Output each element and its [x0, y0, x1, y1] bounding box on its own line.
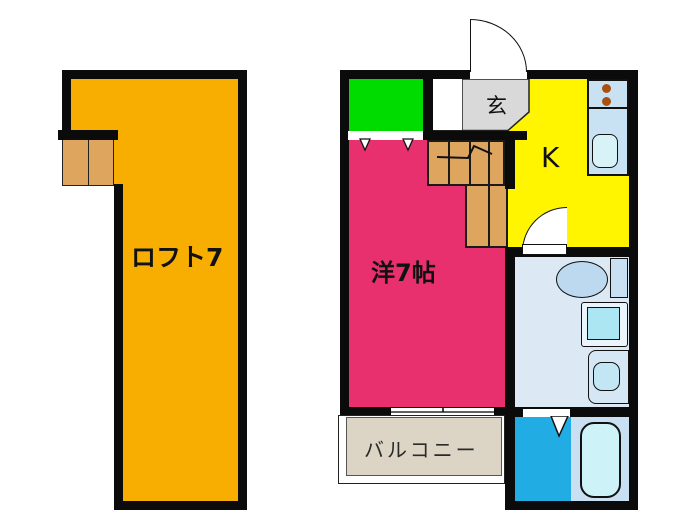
genkan-label: 玄 — [486, 96, 507, 117]
wall-loft-top — [62, 70, 247, 79]
wall-loft-right — [238, 70, 247, 510]
toilet-tank-icon — [610, 258, 628, 298]
stove-burner-icon — [602, 97, 611, 106]
wall-main-left — [340, 70, 349, 417]
balcony-label: バルコニー — [364, 440, 479, 460]
loft-floor-lower — [114, 131, 238, 501]
bathroom-door-leaf — [522, 244, 567, 255]
washing-machine-icon — [581, 302, 628, 347]
loft-storage-box — [62, 139, 89, 186]
vanity-sink-icon — [588, 350, 629, 404]
entrance-corridor — [433, 79, 462, 131]
wall-bath-left — [505, 407, 515, 510]
kitchen-counter — [587, 79, 629, 176]
closet-fold-mark-icon — [348, 131, 423, 153]
kitchen-sink-icon — [592, 134, 618, 168]
loft-label: ロフト7 — [131, 245, 223, 270]
kitchen-label: K — [541, 144, 559, 172]
western-room-label: 洋7帖 — [371, 261, 436, 285]
stairs-lower-run — [465, 184, 508, 248]
stairs-arrow-icon — [427, 140, 505, 186]
loft-storage-box — [88, 139, 114, 186]
toilet-bowl-icon — [556, 261, 608, 298]
wall-loft-bottom — [114, 501, 247, 510]
wall-loft-left-lower — [114, 184, 123, 510]
closet-floor — [349, 79, 423, 131]
shower-fold-mark-icon — [543, 416, 573, 439]
stove-burner-icon — [602, 84, 611, 93]
washer-drum-icon — [587, 307, 620, 340]
wall-closet-right — [423, 70, 433, 140]
floor-plan-canvas: ロフト7 玄 K 洋7帖 バルコニー — [0, 0, 700, 525]
wall-loft-notch — [58, 130, 118, 140]
wall-mid-vertical — [505, 247, 515, 417]
vanity-basin-icon — [593, 362, 620, 391]
wall-bath-bottom — [505, 501, 638, 510]
wall-stairs-right — [505, 131, 515, 189]
counter-divider — [589, 107, 627, 109]
stair-tread-line — [488, 186, 490, 246]
wall-main-right — [629, 70, 638, 510]
loft-floor-upper — [71, 79, 238, 135]
bathtub-icon — [580, 422, 621, 498]
entrance-door-arc-icon — [470, 19, 527, 72]
